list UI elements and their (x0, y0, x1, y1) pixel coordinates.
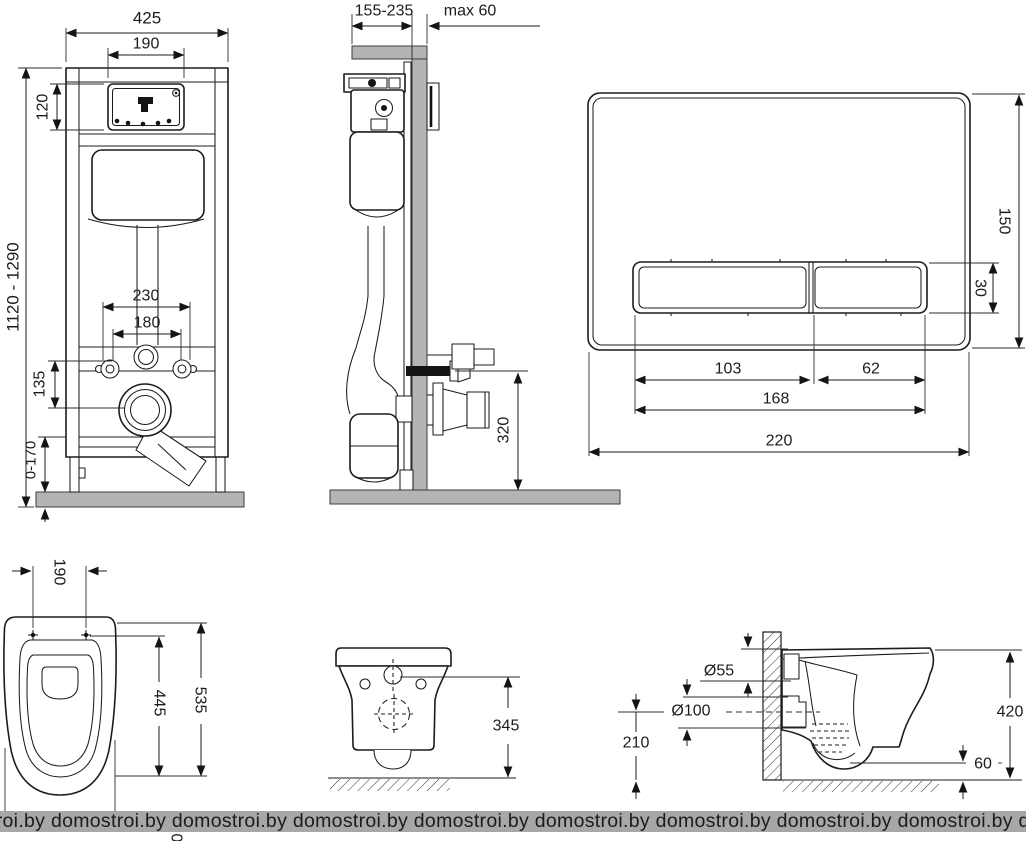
cistern-side (350, 90, 404, 352)
watermark-band: domostroi.by domostroi.by domostroi.by d… (0, 810, 1026, 832)
bowl-profile (782, 648, 933, 769)
bowl-side-view: Ø55 Ø100 210 420 60 (618, 632, 1023, 799)
bowl-outline-top (4, 617, 116, 795)
wall-side (412, 46, 427, 504)
dim-frame-height-range: 1120 - 1290 (4, 242, 23, 331)
bowl-rear-view: 345 (328, 648, 520, 791)
dim-outlet-diameter: Ø100 (671, 703, 710, 720)
dim-outlet-height: 320 (496, 417, 513, 444)
outlet-connector (433, 383, 443, 435)
floor-front (36, 492, 244, 507)
wall-hatch (763, 632, 781, 780)
dim-fixing-inner: 180 (134, 315, 161, 332)
fixing-stud (406, 366, 450, 376)
dim-fixing-outer: 230 (133, 288, 160, 305)
dim-bowl-depth: 445 (151, 690, 168, 717)
dim-depth-range: 155-235 (355, 3, 414, 20)
dim-small-button: 62 (862, 361, 880, 378)
dim-window-height: 120 (35, 94, 52, 121)
dim-window-width: 190 (133, 36, 160, 53)
watermark-text: domostroi.by domostroi.by domostroi.by d… (0, 810, 1026, 832)
dim-leg-adjust: 0-170 (23, 441, 40, 479)
flush-plate-view: 30 150 103 62 168 220 (588, 93, 1025, 456)
dim-inlet-diameter: Ø55 (704, 663, 734, 680)
dim-outlet-axis-height: 210 (623, 735, 650, 752)
dim-plate-width: 220 (766, 433, 793, 450)
dim-clipped: 0 (168, 834, 185, 841)
dim-bowl-length: 535 (192, 687, 209, 714)
cistern-access-window (108, 84, 184, 130)
dim-large-button: 103 (715, 361, 742, 378)
bowl-top-view: 190 445 535 0 (4, 559, 209, 841)
flush-buttons-frame (633, 262, 927, 313)
dim-bottom-clearance: 60 (974, 756, 992, 773)
frame-front-view: 425 190 120 1120 - 1290 230 180 135 0-17… (4, 9, 245, 523)
dim-fixing-to-outlet: 135 (32, 371, 49, 398)
dim-rear-height: 345 (493, 718, 520, 735)
trap-side (347, 348, 412, 482)
dim-bolt-spacing: 190 (51, 559, 68, 586)
flush-spud (784, 654, 799, 679)
dim-buttons-width: 168 (763, 391, 790, 408)
frame-side-view: 155-235 max 60 320 (330, 3, 620, 505)
technical-drawing-page: 425 190 120 1120 - 1290 230 180 135 0-17… (0, 0, 1026, 841)
dim-wall-max: max 60 (444, 3, 497, 20)
drawing-canvas: 425 190 120 1120 - 1290 230 180 135 0-17… (0, 0, 1026, 841)
dim-button-height: 30 (972, 279, 989, 297)
wall-hanger (427, 83, 439, 130)
floor-side (330, 490, 620, 504)
ground-hatch-side (783, 781, 939, 792)
dim-frame-width: 425 (133, 9, 161, 28)
ground-hatch-rear (330, 779, 450, 791)
dim-total-height: 420 (997, 704, 1024, 721)
dim-plate-height: 150 (996, 208, 1013, 235)
